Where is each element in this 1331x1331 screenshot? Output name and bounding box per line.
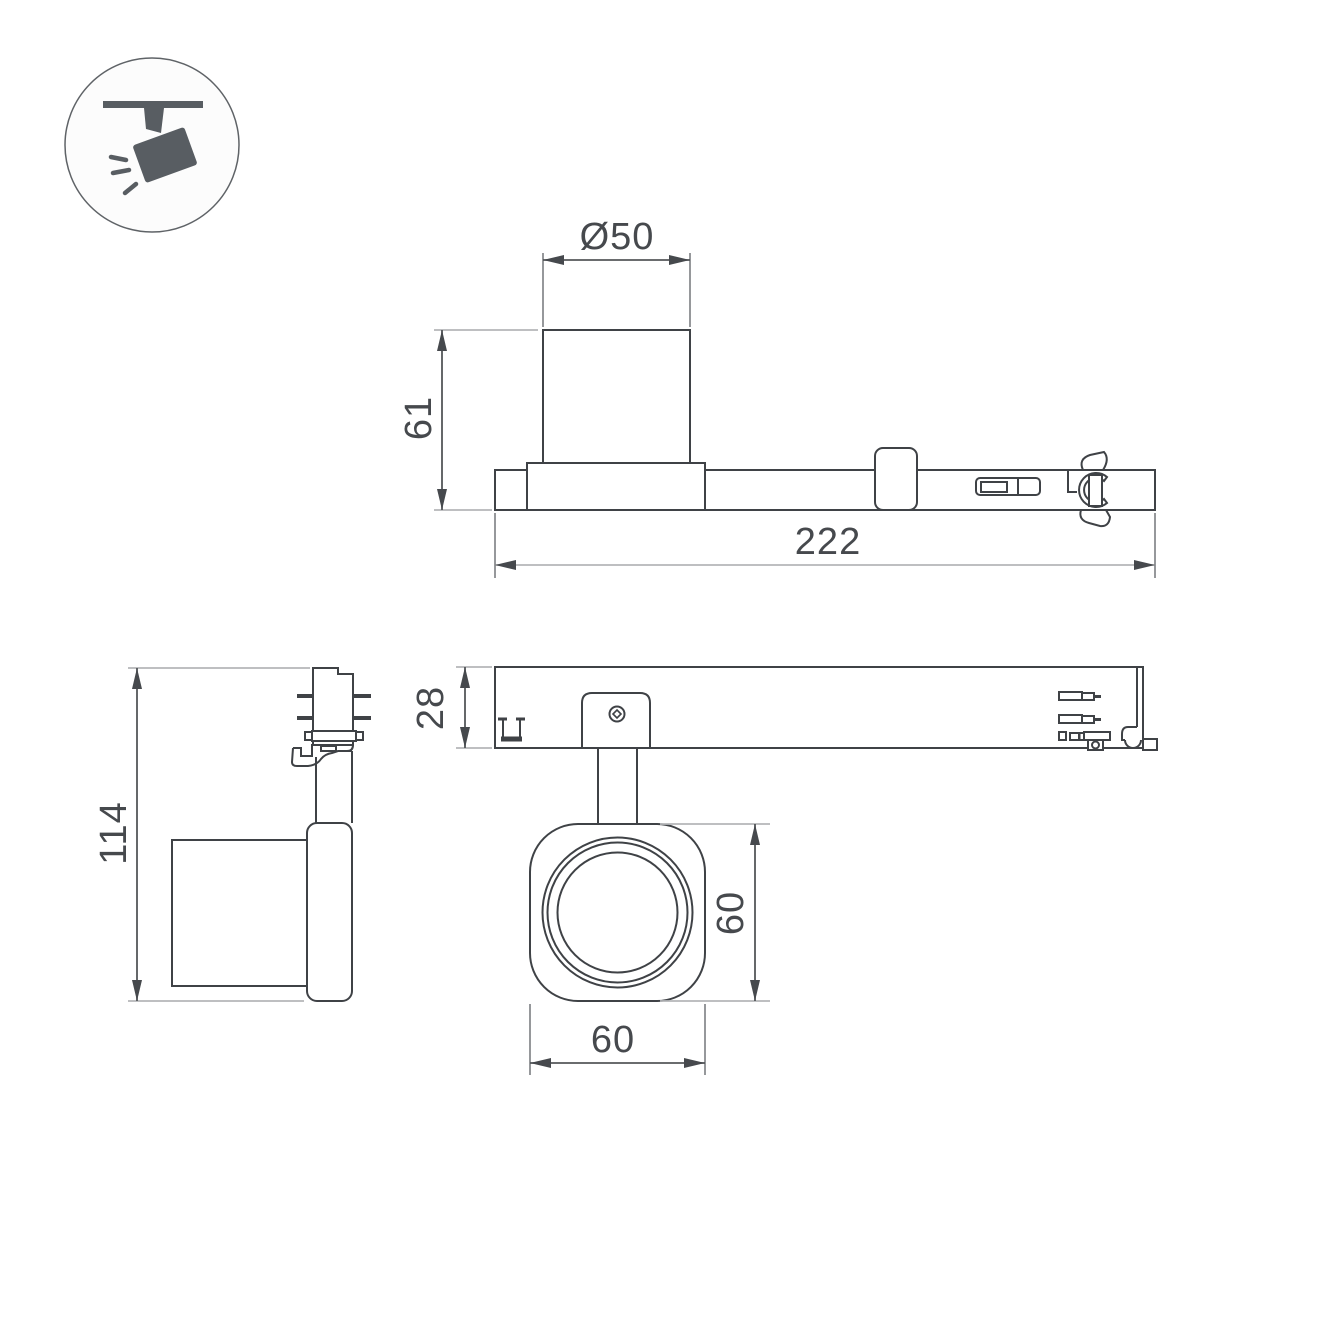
adapter-tab-bar [312,731,356,741]
lamp-cylinder [543,330,690,463]
latch-end-tab [1143,739,1157,750]
selector-switch-knob [981,482,1007,492]
icon-mount-stem [144,108,164,133]
lamp-base-block [527,463,705,510]
hook-channel [293,744,312,756]
latch-bulge [1125,740,1141,748]
dim-label-head-width-60: 60 [591,1021,635,1059]
latch-slot [1089,475,1102,506]
hook-slot [321,746,336,751]
dim-label-height-61: 61 [400,396,438,440]
lamp-bezel-side [307,823,352,1001]
latch-lower-tab [1080,510,1110,526]
screw-outer [610,707,625,722]
technical-drawing-page: Ø50 61 222 114 28 60 60 [0,0,1331,1331]
side-view-drawing [495,330,1155,526]
dim-label-head-height-60: 60 [712,891,750,935]
dim-label-length-222: 222 [795,523,861,561]
dim-label-depth-28: 28 [412,686,450,730]
lamp-body-side [172,840,307,986]
front-view-drawing [172,668,371,1001]
dim-label-height-114: 114 [95,801,133,865]
icon-ceiling-bar [103,101,203,108]
drawing-svg [0,0,1331,1331]
track-clamp [875,448,917,510]
lamp-head-face [530,824,705,1001]
latch-upper-tab [1082,452,1107,470]
top-view-drawing [495,667,1157,1001]
track-spotlight-icon [65,58,239,232]
dim-label-diameter: Ø50 [580,218,655,256]
